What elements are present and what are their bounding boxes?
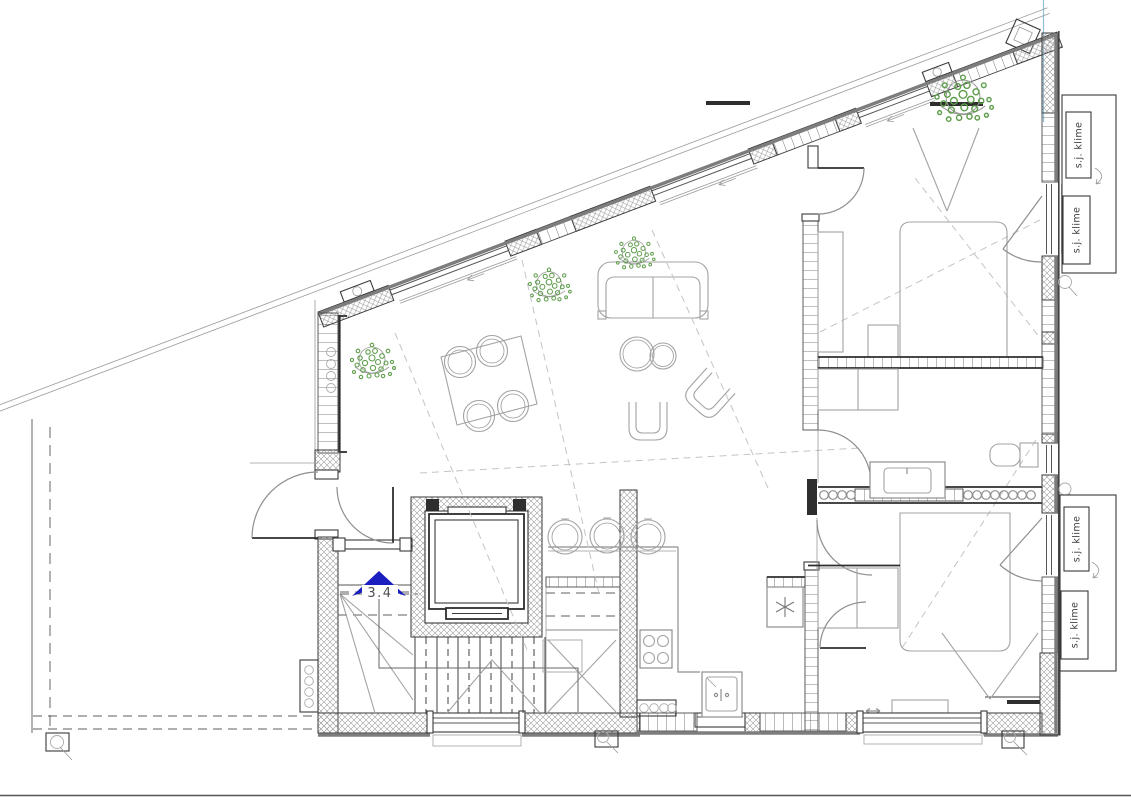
stair-arrow-label: 3.4 — [367, 586, 392, 601]
left-living-wall — [315, 300, 347, 472]
terrace-door — [250, 463, 338, 539]
toilet — [990, 443, 1038, 467]
ac-units-bottom: s.j. klime s.j. klime — [1060, 495, 1116, 671]
floor-plan-page: 3.4 — [0, 0, 1131, 801]
terrace-boundary — [32, 419, 316, 760]
kitchen-sink — [702, 672, 742, 717]
ac-unit-label: s.j. klime — [1070, 602, 1081, 649]
master-bedroom — [802, 146, 1043, 430]
dining-set — [441, 336, 537, 432]
floor-plan-drawing: 3.4 — [0, 0, 1131, 801]
bar-stools — [548, 518, 665, 554]
ac-units-top: s.j. klime s.j. klime — [1062, 95, 1116, 273]
cooktop — [640, 630, 672, 668]
water-heater-symbol — [776, 597, 794, 617]
entry-guide-lines — [913, 128, 979, 211]
kitchen — [548, 518, 872, 732]
section-mark — [706, 101, 750, 105]
bathroom — [807, 369, 1042, 515]
plants — [350, 75, 993, 379]
living-room-furniture — [441, 262, 735, 440]
ac-unit-label: s.j. klime — [1072, 516, 1083, 563]
ac-unit-label: s.j. klime — [1074, 122, 1085, 169]
elevator — [411, 497, 542, 637]
ac-unit-label: s.j. klime — [1072, 207, 1083, 254]
sofa — [598, 262, 708, 319]
diagonal-facade-wall — [0, 7, 1066, 460]
bottom-wall — [595, 711, 1058, 755]
